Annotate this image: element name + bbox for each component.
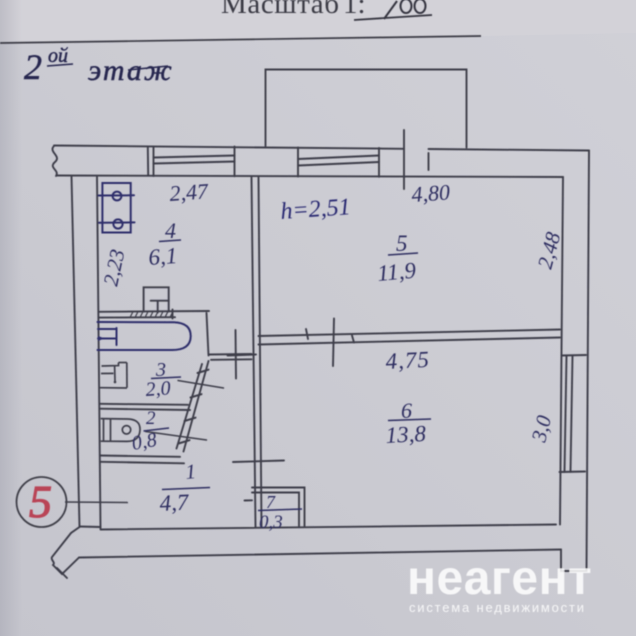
svg-text:1:: 1: <box>343 0 366 20</box>
svg-text:2: 2 <box>146 408 156 429</box>
svg-text:13,8: 13,8 <box>385 421 427 448</box>
svg-text:h=2,51: h=2,51 <box>280 194 352 225</box>
svg-text:система недвижимости: система недвижимости <box>409 600 586 615</box>
svg-text:4,7: 4,7 <box>159 489 191 516</box>
svg-text:этаж: этаж <box>88 54 174 87</box>
svg-text:ой: ой <box>48 45 68 67</box>
svg-text:1: 1 <box>184 459 197 484</box>
svg-text:4: 4 <box>165 218 176 243</box>
svg-text:2,47: 2,47 <box>169 178 210 206</box>
svg-text:6,1: 6,1 <box>148 243 178 270</box>
svg-text:5: 5 <box>29 476 52 527</box>
svg-text:0,8: 0,8 <box>130 429 158 455</box>
svg-text:неагент: неагент <box>407 552 592 605</box>
svg-text:4,75: 4,75 <box>385 347 430 374</box>
svg-text:2: 2 <box>24 47 42 87</box>
svg-text:7: 7 <box>266 492 276 512</box>
svg-text:0,3: 0,3 <box>259 512 283 533</box>
svg-text:Масштаб: Масштаб <box>221 0 339 20</box>
svg-text:11,9: 11,9 <box>376 258 417 286</box>
svg-text:5: 5 <box>396 231 408 256</box>
svg-text:2,0: 2,0 <box>145 377 171 401</box>
svg-text:4,80: 4,80 <box>411 179 451 207</box>
